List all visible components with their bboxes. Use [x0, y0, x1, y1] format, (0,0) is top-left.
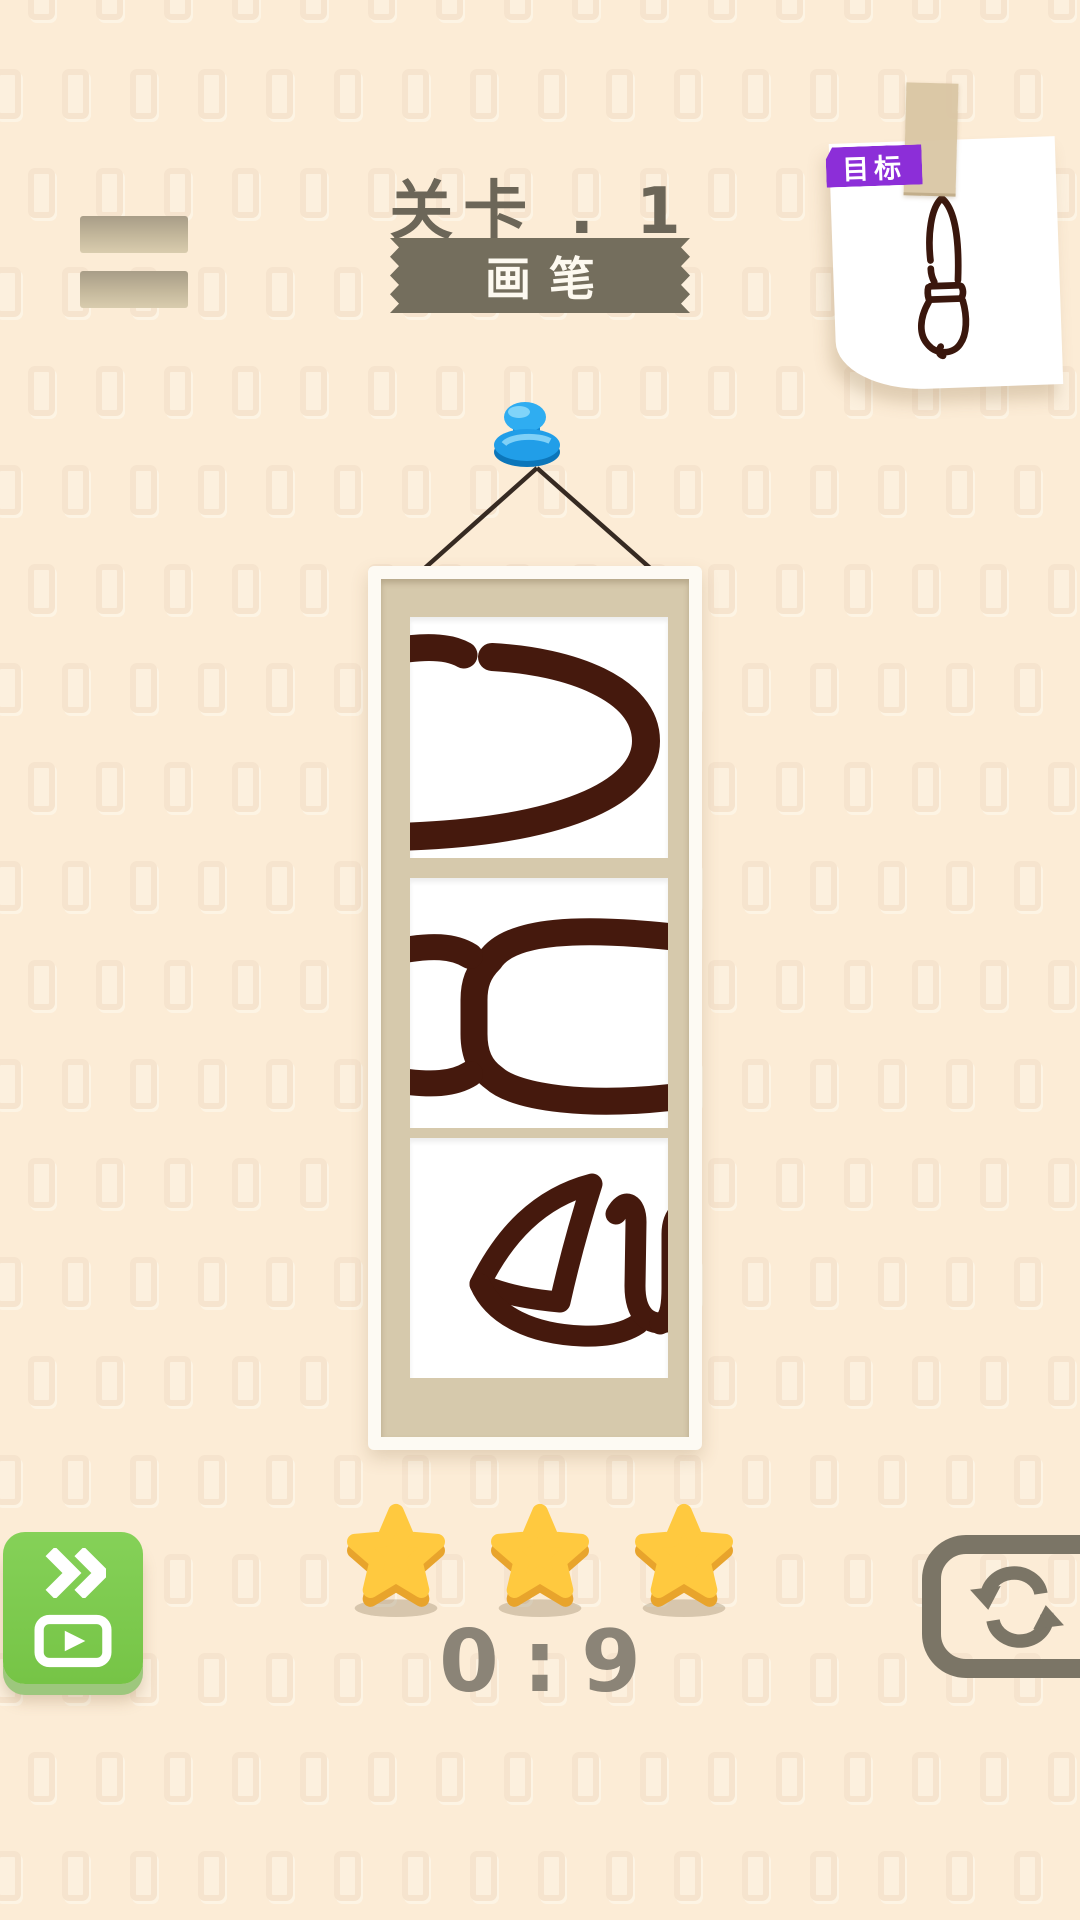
puzzle-piece-brush-head[interactable] [410, 1138, 668, 1378]
target-paintbrush-drawing [899, 191, 991, 369]
goal-badge: 目标 [825, 144, 922, 187]
skip-level-button[interactable] [3, 1532, 143, 1684]
puzzle-piece-brush-tip[interactable] [410, 617, 668, 858]
push-pin-and-strings [380, 395, 700, 580]
level-type-ribbon: 画笔 [390, 238, 690, 313]
goal-badge-label: 目标 [841, 145, 906, 186]
ribbon-label: 画笔 [485, 243, 613, 309]
picture-frame [368, 566, 702, 1450]
star-icon [625, 1498, 743, 1622]
refresh-icon [959, 1562, 1075, 1654]
game-screen: 关卡 . 1 画笔 目标 [0, 0, 1080, 1920]
restart-button[interactable] [922, 1535, 1080, 1678]
push-pin-icon [494, 402, 560, 467]
timer-value: 0:9 [12, 1612, 1080, 1712]
star-icon [481, 1498, 599, 1622]
video-play-icon [34, 1614, 112, 1668]
star-rating [0, 1498, 1080, 1628]
star-icon [337, 1498, 455, 1622]
puzzle-piece-brush-handle[interactable] [410, 878, 668, 1128]
fast-forward-icon [40, 1548, 106, 1598]
hanging-string [417, 468, 658, 575]
menu-bar-icon [80, 271, 188, 308]
